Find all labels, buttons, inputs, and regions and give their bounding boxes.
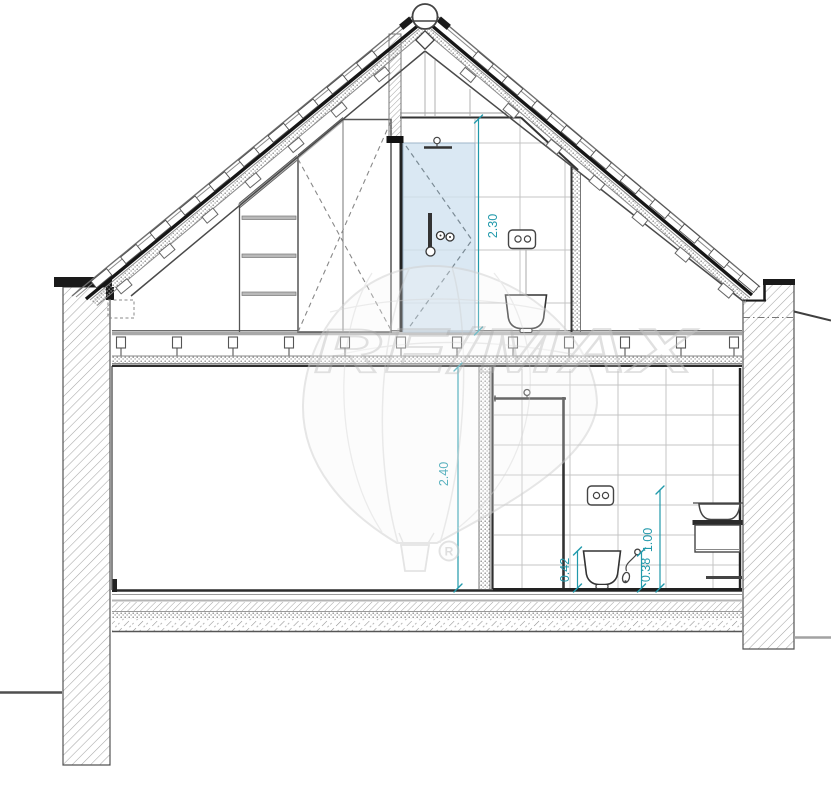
right-exterior-wall [743, 279, 795, 649]
section-drawing-svg: 2.30 2.40 1.00 0.42 0.38 [0, 0, 831, 800]
hanger-bracket [173, 337, 182, 348]
screed-layer [112, 602, 742, 611]
insulation-layer [112, 613, 742, 619]
ground-wall-hung-toilet [584, 551, 621, 589]
terrain-right-upper [794, 312, 831, 321]
skirting-detail [112, 579, 117, 592]
attic-flush-plate [509, 230, 536, 249]
washbasin-vanity [693, 503, 744, 578]
hanger-bracket [117, 337, 126, 348]
roof-membrane [427, 22, 752, 296]
hanger-bracket [229, 337, 238, 348]
hanger-bracket [285, 337, 294, 348]
washbasin-bowl [699, 504, 740, 520]
vanity-cabinet [695, 525, 740, 552]
slab-layer [112, 619, 742, 631]
left-wall-plate-hidden [108, 300, 134, 318]
shelf [242, 216, 296, 220]
hanger-bracket [730, 337, 739, 348]
registered-mark-letter: R [445, 545, 454, 559]
dim-label-toilet-height: 0.42 [558, 558, 572, 582]
section-drawing: 2.30 2.40 1.00 0.42 0.38 [0, 0, 831, 800]
right-eaves-cap [763, 279, 795, 285]
dim-label-hand-spray-height: 0.38 [639, 558, 653, 582]
ground-flush-plate [588, 486, 614, 505]
watermark-brand-text: RE/MAX [314, 317, 698, 386]
floor-slab [112, 579, 742, 632]
hand-spray [621, 549, 640, 583]
left-exterior-wall [54, 277, 134, 765]
hand-shower-ring [426, 247, 435, 256]
vanity-counter [693, 520, 743, 525]
balloon-basket [401, 545, 429, 571]
dim-hand-spray-height: 0.38 [638, 548, 654, 592]
dim-label-attic-height: 2.30 [486, 214, 500, 238]
watermark: RE/MAX R [303, 266, 698, 571]
dim-label-washbasin-height: 1.00 [641, 528, 655, 552]
shelf [242, 254, 296, 258]
partition-wall-attic [572, 166, 581, 332]
shelf [242, 292, 296, 296]
